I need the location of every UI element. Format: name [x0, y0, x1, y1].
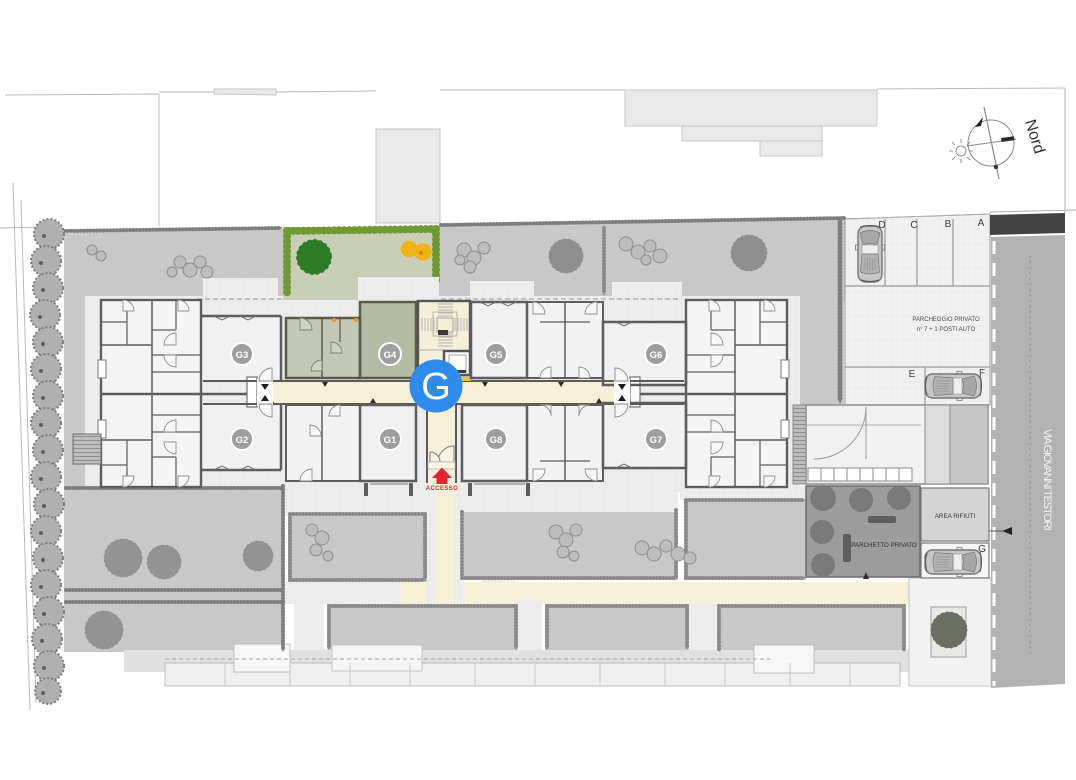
svg-text:AREA RIFIUTI: AREA RIFIUTI — [935, 513, 976, 520]
svg-text:Nord: Nord — [1021, 118, 1047, 156]
svg-text:G6: G6 — [650, 350, 663, 361]
svg-text:G1: G1 — [384, 435, 397, 446]
svg-text:G7: G7 — [650, 435, 663, 446]
svg-text:E: E — [909, 369, 916, 380]
svg-text:G3: G3 — [236, 350, 249, 361]
svg-text:C: C — [910, 220, 917, 231]
svg-text:B: B — [945, 219, 952, 230]
svg-text:PARCHETTO PRIVATO: PARCHETTO PRIVATO — [851, 542, 917, 549]
svg-text:G4: G4 — [384, 350, 397, 361]
svg-text:G2: G2 — [236, 435, 249, 446]
svg-text:n° 7 + 1 POSTI AUTO: n° 7 + 1 POSTI AUTO — [917, 327, 976, 333]
svg-text:VIA GIOVANNI TESTORI: VIA GIOVANNI TESTORI — [1041, 429, 1053, 531]
svg-text:G8: G8 — [490, 435, 503, 446]
svg-text:PARCHEGGIO PRIVATO: PARCHEGGIO PRIVATO — [912, 317, 980, 323]
svg-text:A: A — [978, 218, 985, 229]
svg-text:G: G — [421, 366, 451, 408]
svg-text:ACCESSO: ACCESSO — [426, 486, 458, 492]
svg-text:G5: G5 — [490, 350, 503, 361]
